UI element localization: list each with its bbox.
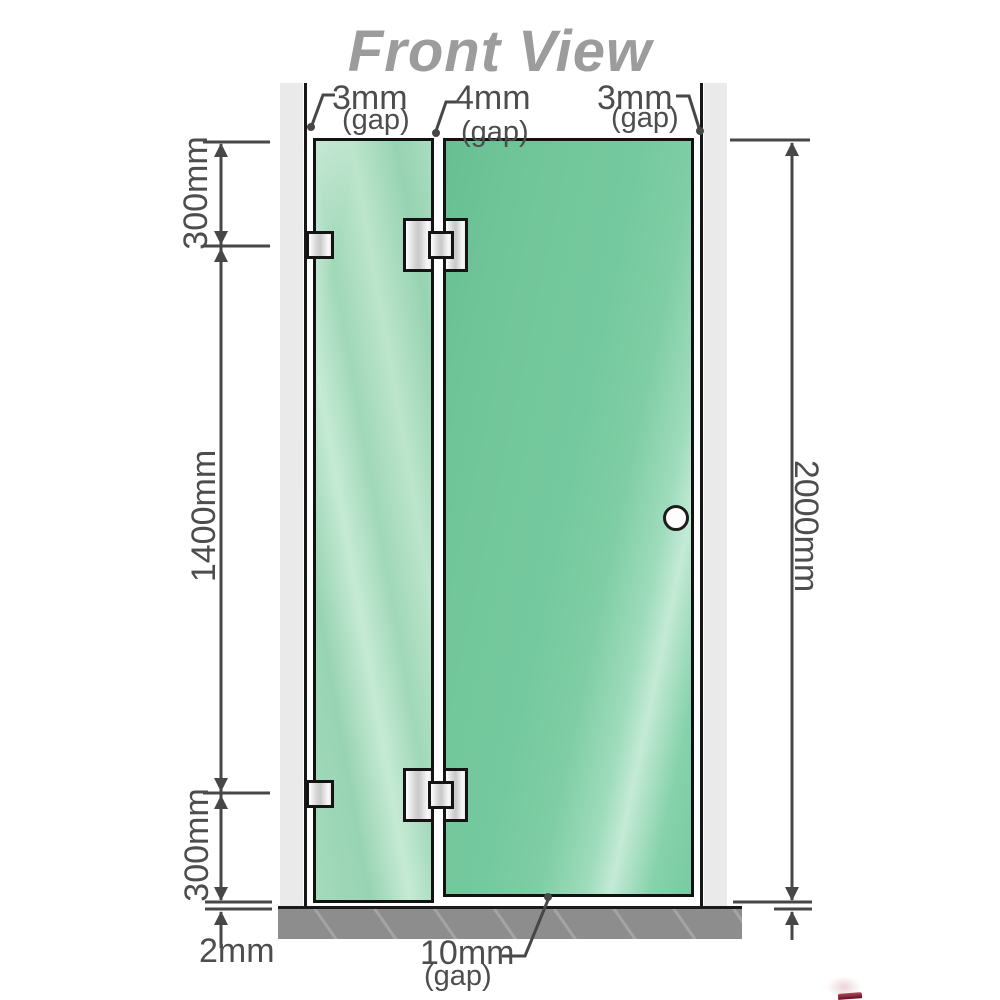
corner-artifact [838, 992, 862, 1000]
glass-hinge-top-knuckle [428, 231, 454, 259]
dimension-label-top-section: 300mm [179, 136, 213, 249]
dimension-label-middle-section: 1400mm [187, 450, 221, 582]
dimension-label-total-height: 2000mm [789, 460, 823, 592]
right-wall-channel [704, 83, 727, 908]
gap-label-middle-sub: (gap) [461, 118, 529, 147]
glass-door-panel [443, 138, 694, 897]
wall-bracket-bottom [306, 780, 334, 808]
diagram-title: Front View [348, 18, 652, 85]
gap-label-middle: 4mm [455, 81, 531, 115]
left-wall-channel [280, 83, 303, 908]
glass-hinge-bottom-knuckle [428, 781, 454, 809]
floor-gap-panel-label: 2mm [199, 934, 275, 968]
right-wall-edge-line [700, 83, 703, 906]
floor-gap-door-label-sub: (gap) [424, 962, 492, 991]
gap-label-left-sub: (gap) [342, 106, 410, 135]
dimension-label-bottom-section: 300mm [180, 788, 214, 901]
wall-bracket-top [306, 231, 334, 259]
gap-label-right-sub: (gap) [611, 104, 679, 133]
door-handle [663, 505, 689, 531]
front-view-diagram: Front View [0, 0, 1000, 1000]
